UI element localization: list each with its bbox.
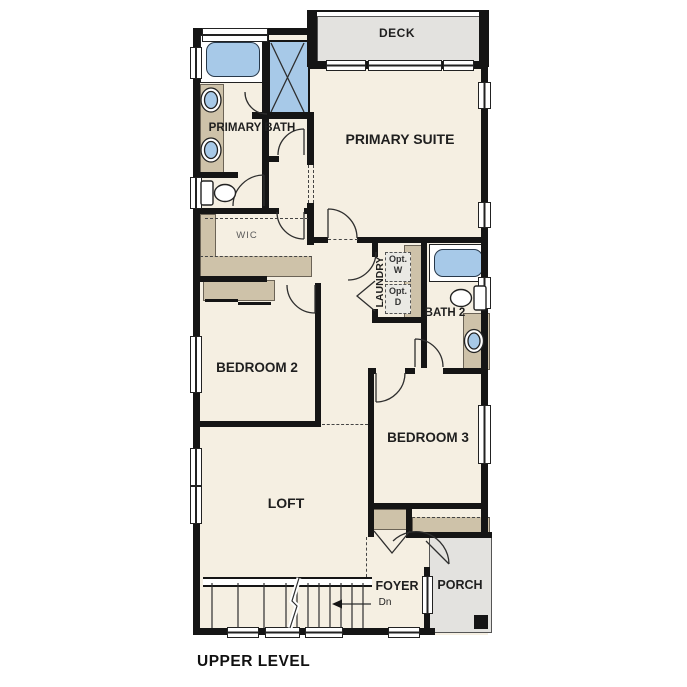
primary-toilet-tank	[201, 181, 213, 205]
bath2-sink-basin	[468, 333, 480, 349]
room-label-bath2: BATH 2	[423, 306, 467, 320]
room-label-porch: PORCH	[430, 578, 490, 594]
bedroom2-door-arc	[287, 285, 315, 313]
bath2-toilet-bowl	[451, 290, 472, 307]
entry-door-arc	[393, 532, 449, 564]
room-label-bedroom2: BEDROOM 2	[197, 360, 317, 377]
bath2-door-arc	[415, 339, 443, 367]
laundry-bifold-door	[357, 281, 375, 311]
stairs-down-arrowhead	[332, 600, 342, 609]
room-label-laundry: LAUNDRY	[374, 245, 388, 319]
room-label-primary-suite: PRIMARY SUITE	[340, 131, 460, 149]
bedroom3-door-arc	[376, 373, 405, 402]
floor-plan: Opt. W Opt. D	[0, 0, 687, 687]
room-label-primary-bath: PRIMARY BATH	[206, 121, 298, 135]
room-label-deck: DECK	[347, 26, 447, 41]
primary-toilet-bowl	[215, 185, 236, 202]
symbols-overlay	[0, 0, 687, 687]
wc-door-arc	[233, 175, 264, 206]
laundry-door-arc	[348, 252, 376, 280]
primary-suite-door-arc	[328, 209, 357, 238]
shower-door-arc	[245, 92, 267, 114]
room-label-loft: LOFT	[246, 495, 326, 513]
room-label-wic: WIC	[227, 230, 267, 241]
bath2-toilet-tank	[474, 286, 486, 310]
shower-glass-icon	[271, 43, 304, 112]
plan-title: UPPER LEVEL	[197, 653, 377, 671]
stairs-down-label: Dn	[374, 597, 396, 610]
wic-door-arc	[277, 212, 304, 239]
room-label-foyer: FOYER	[367, 579, 427, 595]
primary-sink-2-basin	[205, 142, 218, 159]
primary-sink-1-basin	[205, 92, 218, 109]
room-label-bedroom3: BEDROOM 3	[368, 430, 488, 447]
